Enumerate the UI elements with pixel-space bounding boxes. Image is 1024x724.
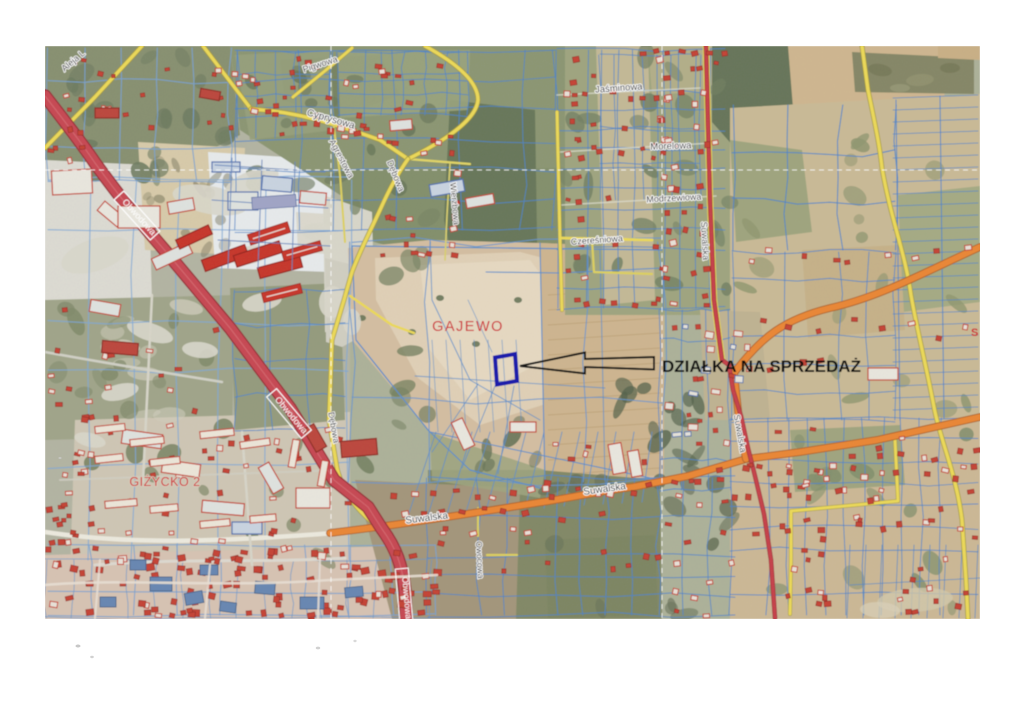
svg-text:GIŻYCKO 2: GIŻYCKO 2 (129, 475, 200, 489)
svg-text:Morelowa: Morelowa (650, 140, 692, 152)
svg-text:DZIAŁKA NA SPRZEDAŻ: DZIAŁKA NA SPRZEDAŻ (662, 357, 861, 376)
svg-text:Suwalska: Suwalska (699, 221, 711, 260)
svg-text:GAJEWO: GAJEWO (432, 319, 504, 335)
svg-text:Owocowa: Owocowa (474, 541, 486, 579)
svg-text:S: S (971, 327, 978, 339)
